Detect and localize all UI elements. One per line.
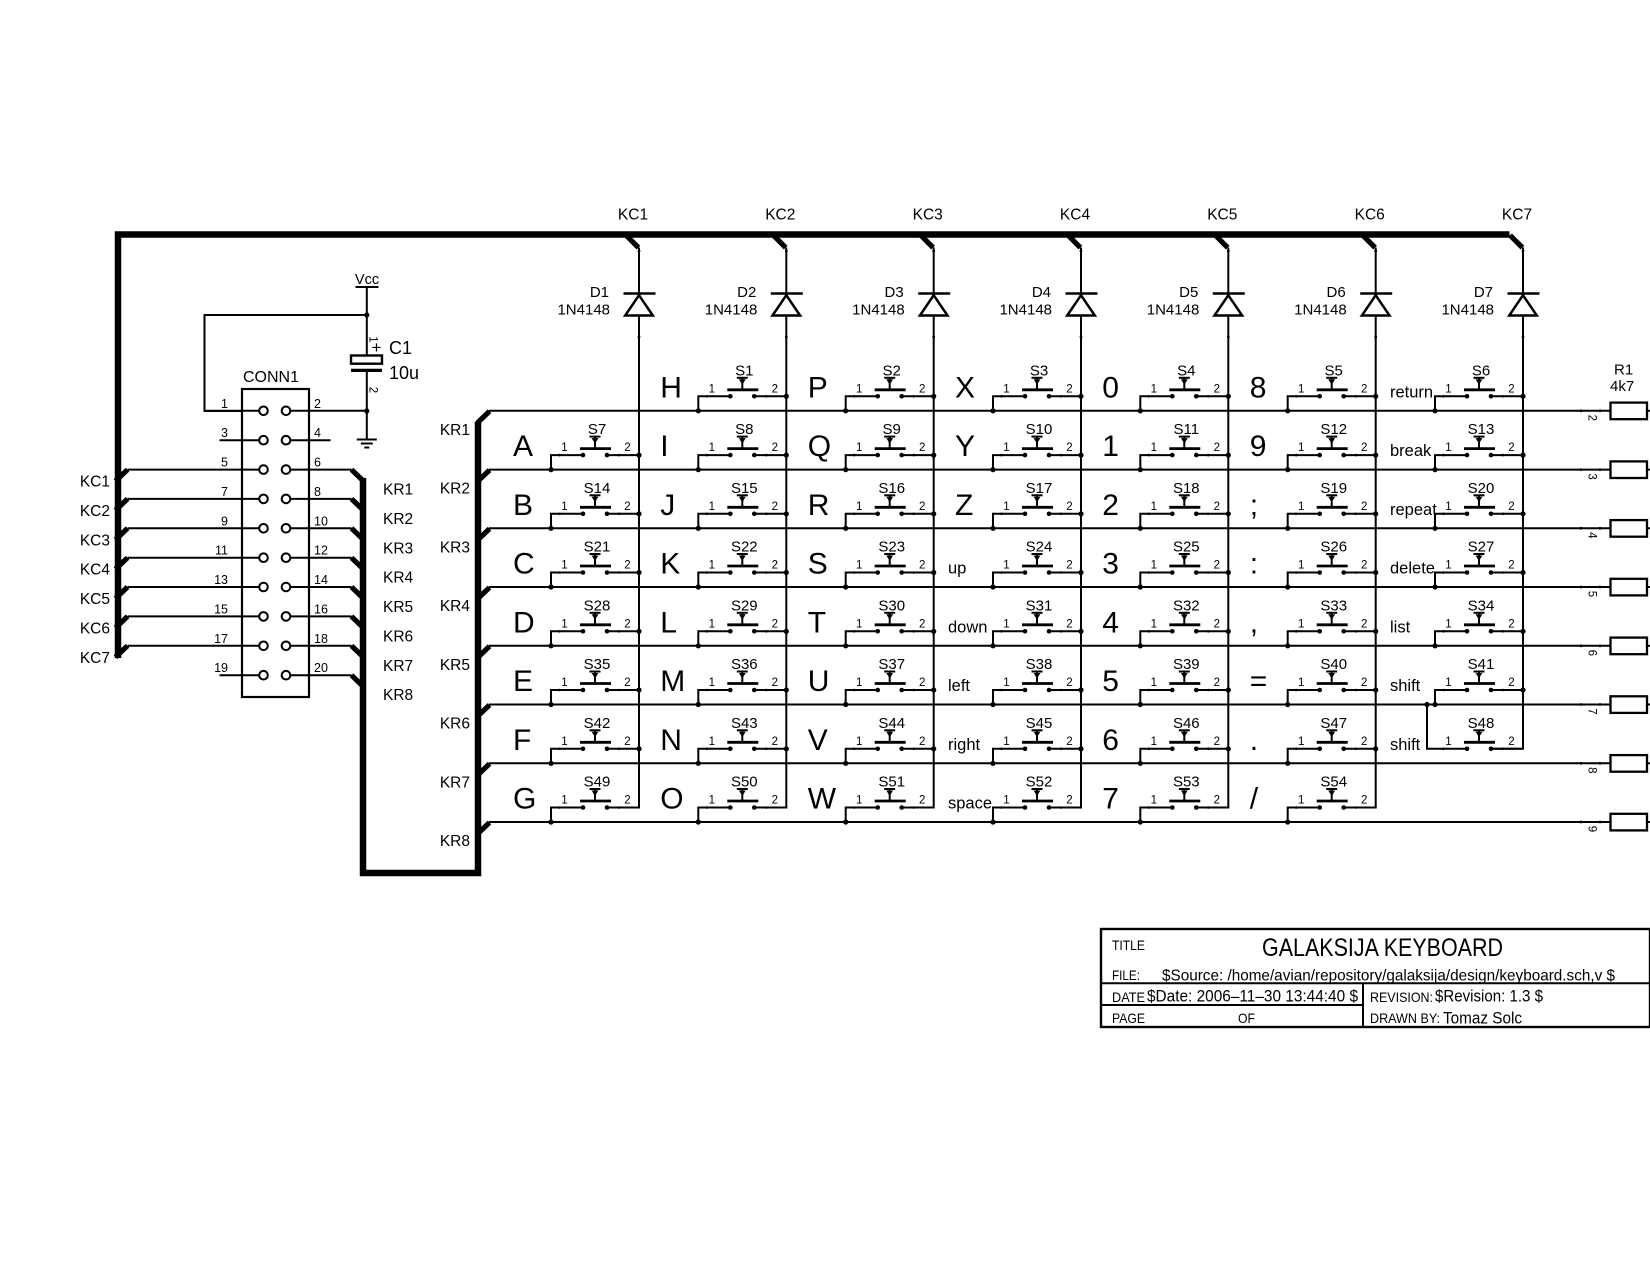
svg-text:4: 4 — [1586, 532, 1598, 539]
svg-text:L: L — [660, 606, 677, 639]
svg-text:$Date: 2006–11–30 13:44:40 $: $Date: 2006–11–30 13:44:40 $ — [1147, 988, 1358, 1006]
svg-text:KR3: KR3 — [440, 539, 470, 556]
svg-text:S21: S21 — [584, 539, 611, 556]
svg-text:1: 1 — [1151, 795, 1157, 807]
svg-text:S11: S11 — [1174, 421, 1200, 438]
svg-text:2: 2 — [1508, 618, 1514, 630]
svg-text:D4: D4 — [1032, 284, 1051, 301]
svg-text:return: return — [1390, 383, 1433, 401]
svg-text:O: O — [660, 783, 683, 816]
svg-text:KR5: KR5 — [383, 599, 413, 616]
svg-text:1N4148: 1N4148 — [705, 302, 758, 319]
svg-text:10u: 10u — [389, 363, 419, 383]
svg-text:2: 2 — [1214, 795, 1220, 807]
svg-text:2: 2 — [1361, 736, 1367, 748]
svg-text:KR8: KR8 — [440, 833, 470, 850]
svg-text:2: 2 — [1214, 501, 1220, 513]
svg-text:M: M — [660, 665, 685, 698]
svg-text:16: 16 — [314, 602, 328, 616]
svg-text:R1: R1 — [1614, 362, 1633, 379]
svg-text:1: 1 — [1151, 560, 1157, 572]
svg-text:1: 1 — [561, 795, 567, 807]
svg-text:2: 2 — [1361, 677, 1367, 689]
svg-text:KR1: KR1 — [440, 422, 470, 439]
svg-text:K: K — [660, 548, 680, 581]
svg-text:2: 2 — [314, 397, 321, 411]
svg-text:19: 19 — [214, 661, 228, 675]
svg-text:S10: S10 — [1026, 421, 1053, 438]
svg-text:1: 1 — [1003, 383, 1009, 395]
svg-text:2: 2 — [1508, 736, 1514, 748]
svg-text:shift: shift — [1390, 736, 1421, 754]
svg-text:KC4: KC4 — [80, 562, 111, 579]
svg-text:5: 5 — [1102, 665, 1119, 698]
svg-text:6: 6 — [1102, 724, 1119, 757]
svg-text:S6: S6 — [1472, 362, 1490, 379]
svg-text:S49: S49 — [584, 774, 611, 791]
svg-text:1: 1 — [856, 677, 862, 689]
svg-text:S13: S13 — [1468, 421, 1495, 438]
svg-text:10: 10 — [314, 514, 328, 528]
svg-text:S22: S22 — [731, 539, 758, 556]
svg-text:S41: S41 — [1468, 656, 1495, 673]
svg-text:1: 1 — [1003, 736, 1009, 748]
svg-text:5: 5 — [1586, 591, 1598, 597]
svg-text:S26: S26 — [1320, 539, 1347, 556]
svg-text:S4: S4 — [1177, 362, 1195, 379]
svg-text:2: 2 — [1066, 501, 1072, 513]
svg-text:S15: S15 — [731, 480, 758, 497]
svg-text:5: 5 — [221, 456, 228, 470]
svg-text:S1: S1 — [735, 362, 753, 379]
svg-text:+: + — [372, 338, 382, 357]
svg-text:2: 2 — [1361, 560, 1367, 572]
svg-text:6: 6 — [1586, 650, 1598, 656]
svg-text:3: 3 — [221, 426, 228, 440]
svg-text:A: A — [513, 430, 533, 463]
svg-text:1: 1 — [856, 795, 862, 807]
svg-text:14: 14 — [314, 573, 328, 587]
svg-text:D7: D7 — [1474, 284, 1493, 301]
svg-text:11: 11 — [215, 544, 228, 558]
svg-text:KC1: KC1 — [80, 474, 110, 491]
svg-text:S43: S43 — [731, 715, 758, 732]
svg-text:2: 2 — [367, 387, 379, 393]
svg-text:X: X — [955, 371, 975, 404]
svg-text:repeat: repeat — [1390, 501, 1437, 519]
svg-text:S53: S53 — [1173, 774, 1200, 791]
svg-text:2: 2 — [772, 677, 778, 689]
svg-text:C1: C1 — [389, 338, 412, 358]
svg-text:KR8: KR8 — [383, 687, 413, 704]
svg-text:2: 2 — [1586, 415, 1598, 421]
svg-text:1: 1 — [709, 501, 715, 513]
svg-text::: : — [1250, 548, 1258, 581]
svg-text:N: N — [660, 724, 682, 757]
svg-text:DRAWN BY:: DRAWN BY: — [1370, 1010, 1440, 1026]
svg-text:1: 1 — [856, 442, 862, 454]
svg-text:2: 2 — [624, 736, 630, 748]
svg-text:S24: S24 — [1026, 539, 1053, 556]
svg-text:S23: S23 — [878, 539, 905, 556]
svg-text:2: 2 — [1214, 736, 1220, 748]
svg-text:KR6: KR6 — [383, 628, 413, 645]
svg-text:2: 2 — [919, 736, 925, 748]
svg-text:1: 1 — [856, 736, 862, 748]
svg-text:$Source: /home/avian/repositor: $Source: /home/avian/repository/galaksij… — [1162, 968, 1615, 985]
svg-text:7: 7 — [1586, 708, 1598, 714]
svg-text:1N4148: 1N4148 — [1441, 302, 1494, 319]
svg-text:1: 1 — [709, 560, 715, 572]
svg-text:2: 2 — [1361, 618, 1367, 630]
svg-text:KC1: KC1 — [618, 207, 648, 224]
svg-text:Tomaz Solc: Tomaz Solc — [1443, 1009, 1522, 1028]
svg-text:Q: Q — [808, 430, 831, 463]
svg-text:1: 1 — [1445, 736, 1451, 748]
svg-text:1: 1 — [1298, 677, 1304, 689]
svg-text:S34: S34 — [1468, 597, 1495, 614]
svg-text:OF: OF — [1238, 1010, 1255, 1026]
svg-text:1N4148: 1N4148 — [1294, 302, 1347, 319]
svg-text:2: 2 — [624, 677, 630, 689]
svg-text:S12: S12 — [1320, 421, 1347, 438]
svg-text:1: 1 — [1445, 501, 1451, 513]
svg-text:2: 2 — [919, 442, 925, 454]
svg-text:2: 2 — [624, 560, 630, 572]
svg-text:2: 2 — [1361, 442, 1367, 454]
svg-text:$Revision: 1.3 $: $Revision: 1.3 $ — [1435, 988, 1543, 1006]
svg-text:Y: Y — [955, 430, 975, 463]
svg-text:8: 8 — [1586, 767, 1598, 773]
svg-text:1: 1 — [709, 677, 715, 689]
svg-text:4: 4 — [314, 426, 321, 440]
svg-text:1N4148: 1N4148 — [557, 302, 610, 319]
svg-text:right: right — [948, 736, 981, 754]
svg-text:S9: S9 — [883, 421, 901, 438]
svg-text:1: 1 — [1151, 442, 1157, 454]
svg-text:S7: S7 — [588, 421, 606, 438]
svg-text:1: 1 — [561, 442, 567, 454]
svg-text:F: F — [513, 724, 531, 757]
svg-text:1: 1 — [1151, 618, 1157, 630]
svg-text:2: 2 — [919, 501, 925, 513]
svg-text:P: P — [808, 371, 828, 404]
svg-text:2: 2 — [919, 618, 925, 630]
svg-text:S37: S37 — [878, 656, 905, 673]
svg-text:B: B — [513, 489, 533, 522]
svg-text:PAGE: PAGE — [1112, 1010, 1145, 1026]
svg-text:1: 1 — [1445, 677, 1451, 689]
svg-text:left: left — [948, 677, 970, 695]
svg-text:KC5: KC5 — [80, 591, 110, 608]
svg-text:REVISION:: REVISION: — [1370, 989, 1433, 1005]
svg-text:13: 13 — [214, 573, 228, 587]
svg-text:20: 20 — [314, 661, 328, 675]
svg-text:1: 1 — [1151, 383, 1157, 395]
svg-text:2: 2 — [772, 618, 778, 630]
svg-text:6: 6 — [314, 456, 321, 470]
svg-text:2: 2 — [1214, 442, 1220, 454]
svg-text:1: 1 — [1298, 501, 1304, 513]
svg-text:1: 1 — [1003, 677, 1009, 689]
svg-text:S3: S3 — [1030, 362, 1048, 379]
svg-text:S51: S51 — [878, 774, 905, 791]
svg-text:S54: S54 — [1320, 774, 1347, 791]
svg-text:2: 2 — [1508, 442, 1514, 454]
svg-text:1: 1 — [1445, 442, 1451, 454]
svg-text:/: / — [1250, 783, 1259, 816]
svg-text:S31: S31 — [1026, 597, 1053, 614]
svg-text:GALAKSIJA KEYBOARD: GALAKSIJA KEYBOARD — [1262, 934, 1503, 962]
svg-text:KR3: KR3 — [383, 540, 413, 557]
svg-text:2: 2 — [624, 442, 630, 454]
svg-text:2: 2 — [1508, 677, 1514, 689]
svg-text:S19: S19 — [1320, 480, 1347, 497]
svg-text:KC2: KC2 — [765, 207, 795, 224]
svg-text:S32: S32 — [1173, 597, 1200, 614]
svg-text:KC3: KC3 — [913, 207, 943, 224]
svg-text:list: list — [1390, 618, 1411, 636]
svg-text:S42: S42 — [584, 715, 611, 732]
svg-text:2: 2 — [772, 795, 778, 807]
svg-text:2: 2 — [624, 795, 630, 807]
svg-text:2: 2 — [772, 442, 778, 454]
svg-text:2: 2 — [1361, 383, 1367, 395]
svg-text:FILE:: FILE: — [1112, 967, 1140, 983]
svg-text:2: 2 — [1066, 383, 1072, 395]
svg-text:2: 2 — [1066, 618, 1072, 630]
svg-text:,: , — [1250, 606, 1258, 639]
svg-text:S25: S25 — [1173, 539, 1200, 556]
svg-text:2: 2 — [919, 383, 925, 395]
svg-text:15: 15 — [214, 602, 228, 616]
svg-text:2: 2 — [1066, 560, 1072, 572]
svg-text:1: 1 — [1003, 501, 1009, 513]
svg-text:2: 2 — [1214, 560, 1220, 572]
svg-text:1: 1 — [1298, 442, 1304, 454]
svg-text:S17: S17 — [1026, 480, 1053, 497]
svg-text:1: 1 — [856, 618, 862, 630]
svg-text:2: 2 — [1066, 677, 1072, 689]
svg-text:2: 2 — [772, 501, 778, 513]
svg-text:S14: S14 — [584, 480, 611, 497]
svg-text:S29: S29 — [731, 597, 758, 614]
svg-text:W: W — [808, 783, 837, 816]
svg-text:1: 1 — [856, 383, 862, 395]
svg-text:1: 1 — [1102, 430, 1119, 463]
svg-text:KC6: KC6 — [80, 620, 110, 637]
svg-text:1: 1 — [1151, 736, 1157, 748]
svg-text:.: . — [1250, 724, 1258, 757]
svg-text:space: space — [948, 795, 992, 813]
svg-text:KR5: KR5 — [440, 657, 470, 674]
svg-text:12: 12 — [314, 544, 328, 558]
svg-text:8: 8 — [1250, 371, 1267, 404]
svg-text:2: 2 — [1066, 442, 1072, 454]
svg-text:KC7: KC7 — [1502, 207, 1532, 224]
svg-text:S39: S39 — [1173, 656, 1200, 673]
svg-text:1: 1 — [856, 501, 862, 513]
svg-text:KR2: KR2 — [440, 481, 470, 498]
svg-text:S44: S44 — [878, 715, 905, 732]
svg-text:1: 1 — [221, 397, 228, 411]
svg-text:;: ; — [1250, 489, 1258, 522]
svg-text:1N4148: 1N4148 — [999, 302, 1052, 319]
svg-text:1: 1 — [1445, 618, 1451, 630]
svg-text:KR2: KR2 — [383, 511, 413, 528]
svg-text:KC3: KC3 — [80, 532, 110, 549]
svg-text:18: 18 — [314, 632, 328, 646]
svg-text:1: 1 — [709, 383, 715, 395]
svg-text:C: C — [513, 548, 535, 581]
svg-text:2: 2 — [1066, 736, 1072, 748]
svg-text:2: 2 — [772, 560, 778, 572]
svg-text:2: 2 — [772, 736, 778, 748]
svg-text:R: R — [808, 489, 830, 522]
svg-text:4k7: 4k7 — [1610, 378, 1634, 395]
svg-text:2: 2 — [1508, 560, 1514, 572]
svg-text:delete: delete — [1390, 560, 1435, 578]
svg-text:S47: S47 — [1320, 715, 1347, 732]
svg-text:CONN1: CONN1 — [243, 369, 299, 386]
svg-text:V: V — [808, 724, 828, 757]
svg-text:2: 2 — [1214, 618, 1220, 630]
svg-text:S46: S46 — [1173, 715, 1200, 732]
svg-text:Vcc: Vcc — [355, 272, 379, 288]
svg-text:1: 1 — [561, 736, 567, 748]
svg-text:break: break — [1390, 442, 1432, 460]
svg-text:S8: S8 — [735, 421, 753, 438]
svg-text:1: 1 — [1298, 795, 1304, 807]
svg-text:2: 2 — [624, 501, 630, 513]
svg-text:2: 2 — [1214, 383, 1220, 395]
svg-text:1: 1 — [1003, 560, 1009, 572]
svg-text:D5: D5 — [1179, 284, 1198, 301]
svg-text:1: 1 — [561, 501, 567, 513]
svg-text:E: E — [513, 665, 533, 698]
svg-text:S30: S30 — [878, 597, 905, 614]
svg-text:G: G — [513, 783, 536, 816]
svg-text:KR7: KR7 — [440, 774, 470, 791]
svg-text:=: = — [1250, 665, 1268, 698]
svg-text:1: 1 — [561, 560, 567, 572]
svg-text:S36: S36 — [731, 656, 758, 673]
svg-text:2: 2 — [1102, 489, 1119, 522]
svg-text:1: 1 — [1298, 736, 1304, 748]
svg-text:2: 2 — [1066, 795, 1072, 807]
svg-text:U: U — [808, 665, 830, 698]
svg-text:I: I — [660, 430, 668, 463]
svg-text:KR7: KR7 — [383, 658, 413, 675]
svg-text:9: 9 — [1586, 826, 1598, 832]
svg-text:17: 17 — [214, 632, 228, 646]
svg-text:S48: S48 — [1468, 715, 1495, 732]
svg-text:S20: S20 — [1468, 480, 1495, 497]
svg-text:1N4148: 1N4148 — [1147, 302, 1200, 319]
svg-text:down: down — [948, 618, 987, 636]
svg-text:up: up — [948, 560, 966, 578]
svg-text:S27: S27 — [1468, 539, 1495, 556]
svg-text:1: 1 — [709, 442, 715, 454]
svg-text:S35: S35 — [584, 656, 611, 673]
svg-text:2: 2 — [919, 677, 925, 689]
svg-text:KC5: KC5 — [1207, 207, 1237, 224]
svg-text:Z: Z — [955, 489, 973, 522]
svg-text:S45: S45 — [1026, 715, 1053, 732]
svg-text:S33: S33 — [1320, 597, 1347, 614]
svg-text:D2: D2 — [737, 284, 756, 301]
svg-text:3: 3 — [1586, 473, 1598, 479]
svg-text:1: 1 — [709, 736, 715, 748]
svg-text:1: 1 — [1445, 383, 1451, 395]
svg-text:shift: shift — [1390, 677, 1421, 695]
svg-text:1: 1 — [1151, 501, 1157, 513]
svg-text:2: 2 — [1508, 383, 1514, 395]
svg-text:2: 2 — [1361, 795, 1367, 807]
svg-text:KR4: KR4 — [440, 598, 471, 615]
svg-text:H: H — [660, 371, 682, 404]
svg-text:J: J — [660, 489, 675, 522]
svg-text:S52: S52 — [1026, 774, 1053, 791]
svg-text:7: 7 — [221, 485, 228, 499]
svg-text:S40: S40 — [1320, 656, 1347, 673]
svg-text:KC6: KC6 — [1355, 207, 1385, 224]
svg-text:1: 1 — [1445, 560, 1451, 572]
svg-text:DATE: DATE — [1112, 989, 1145, 1005]
svg-text:T: T — [808, 606, 826, 639]
svg-text:KR6: KR6 — [440, 716, 470, 733]
svg-text:1: 1 — [709, 795, 715, 807]
svg-text:1N4148: 1N4148 — [852, 302, 905, 319]
svg-text:1: 1 — [561, 677, 567, 689]
svg-text:S28: S28 — [584, 597, 611, 614]
svg-text:1: 1 — [856, 560, 862, 572]
svg-text:2: 2 — [624, 618, 630, 630]
svg-text:1: 1 — [1003, 795, 1009, 807]
svg-text:2: 2 — [1508, 501, 1514, 513]
svg-text:2: 2 — [772, 383, 778, 395]
svg-text:S2: S2 — [883, 362, 901, 379]
svg-text:S50: S50 — [731, 774, 758, 791]
svg-text:3: 3 — [1102, 548, 1119, 581]
svg-text:0: 0 — [1102, 371, 1119, 404]
svg-text:KR4: KR4 — [383, 570, 414, 587]
svg-text:2: 2 — [1361, 501, 1367, 513]
svg-text:1: 1 — [709, 618, 715, 630]
svg-text:1: 1 — [1151, 677, 1157, 689]
svg-text:D1: D1 — [590, 284, 609, 301]
svg-text:9: 9 — [221, 514, 228, 528]
svg-text:1: 1 — [1003, 618, 1009, 630]
svg-text:4: 4 — [1102, 606, 1119, 639]
svg-text:S: S — [808, 548, 828, 581]
svg-text:KR1: KR1 — [383, 482, 413, 499]
svg-text:KC2: KC2 — [80, 503, 110, 520]
svg-text:S16: S16 — [878, 480, 905, 497]
svg-text:KC4: KC4 — [1060, 207, 1091, 224]
svg-text:1: 1 — [1298, 618, 1304, 630]
svg-text:D: D — [513, 606, 535, 639]
svg-text:KC7: KC7 — [80, 650, 110, 667]
svg-text:S18: S18 — [1173, 480, 1200, 497]
svg-text:S5: S5 — [1325, 362, 1343, 379]
svg-text:8: 8 — [314, 485, 321, 499]
svg-text:2: 2 — [1214, 677, 1220, 689]
svg-text:1: 1 — [561, 618, 567, 630]
svg-text:7: 7 — [1102, 783, 1119, 816]
svg-text:2: 2 — [919, 560, 925, 572]
svg-text:S38: S38 — [1026, 656, 1053, 673]
